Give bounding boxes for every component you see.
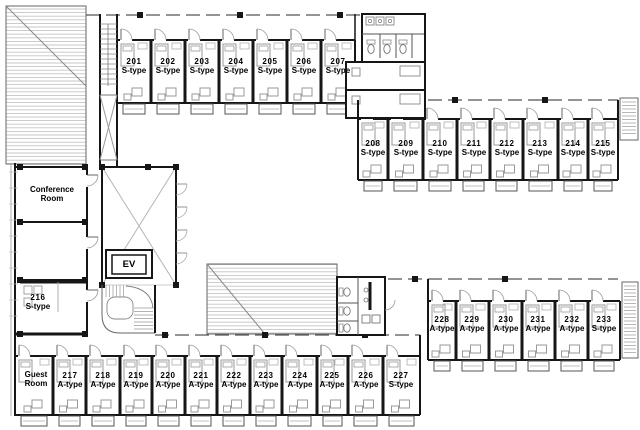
room-type: S-type bbox=[579, 149, 627, 158]
room-type: S-type bbox=[580, 325, 628, 334]
room-label-216: 216S-type bbox=[14, 294, 62, 311]
room-label-207: 207S-type bbox=[314, 58, 362, 75]
room-type: S-type bbox=[377, 381, 425, 390]
elevator-label: EV bbox=[111, 260, 147, 270]
floor-plan: 201S-type 202S-type 203S-type 204S-type … bbox=[0, 0, 640, 430]
room-type: S-type bbox=[14, 303, 62, 312]
room-type: S-type bbox=[314, 67, 362, 76]
room-label-215: 215S-type bbox=[579, 140, 627, 157]
conference-room-label: ConferenceRoom bbox=[26, 186, 78, 203]
room-label-233: 233S-type bbox=[580, 316, 628, 333]
room-label-227: 227S-type bbox=[377, 372, 425, 389]
label-line2: Room bbox=[26, 195, 78, 204]
